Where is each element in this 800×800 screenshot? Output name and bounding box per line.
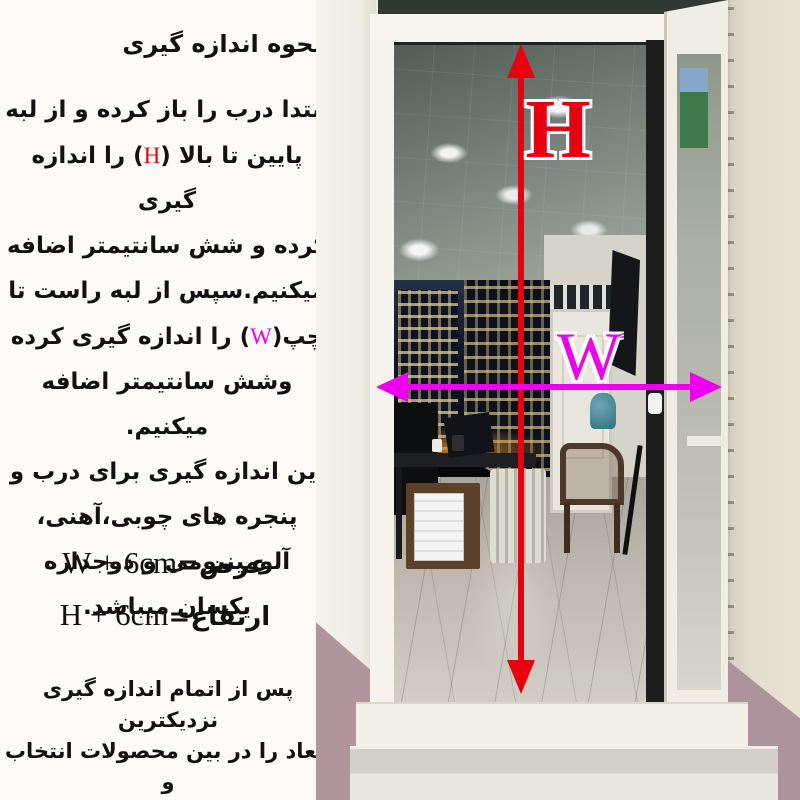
width-symbol-inline: W: [250, 324, 272, 349]
height-symbol-inline: H: [144, 143, 161, 168]
instruction-line: چپ(W) را اندازه گیری کرده: [0, 314, 334, 360]
reflected-picture: [680, 68, 708, 148]
water-cooler-jug: [590, 393, 616, 429]
footer-line: پس از اتمام اندازه گیری نزدیکترین: [0, 674, 336, 736]
measurement-guide-page: نحوه اندازه گیری ابتدا درب را باز کرده و…: [0, 0, 800, 800]
height-formula-label: ارتفاع: [190, 602, 270, 632]
instruction-line: پایین تا بالا (H) را اندازه گیری: [0, 133, 334, 224]
width-arrow-right-head: [690, 372, 722, 402]
instruction-line: پنجره های چوبی،آهنی،: [0, 495, 334, 540]
door-handle: [648, 393, 662, 414]
width-formula-label: عرض: [199, 550, 268, 580]
width-arrow-left-head: [376, 372, 408, 402]
instruction-line: کرده و شش سانتیمتر اضافه: [0, 224, 334, 269]
instruction-line: این اندازه گیری برای درب و: [0, 450, 334, 495]
footer-note: پس از اتمام اندازه گیری نزدیکترین ابعاد …: [0, 674, 336, 800]
height-formula-expression: H + 6cm: [60, 597, 169, 632]
wooden-chair-legs: [564, 503, 620, 553]
height-arrow-down-head: [507, 660, 535, 694]
door-frame-right-seal: [646, 40, 664, 742]
desk-leg: [396, 467, 402, 559]
door-frame-bottom: [356, 702, 748, 752]
instruction-line: وشش سانتیمتر اضافه میکنیم.: [0, 360, 334, 450]
wooden-chair: [560, 443, 624, 505]
instruction-line: ابتدا درب را باز کرده و از لبه: [0, 88, 334, 133]
mug: [452, 435, 464, 451]
height-marker-label: H: [520, 88, 596, 172]
footer-line: ابعاد را در بین محصولات انتخاب و: [0, 736, 336, 798]
door-photo: H W: [316, 0, 800, 800]
desk-monitor: [443, 412, 494, 458]
wall-corner-edge: [728, 0, 734, 660]
door-mullion: [687, 436, 731, 446]
equals-sign: =: [177, 550, 199, 580]
open-door-panel: [664, 0, 728, 742]
interior-door-transom: [550, 285, 612, 309]
width-arrow-line: [404, 384, 694, 390]
height-formula: ارتفاع=H + 6cm: [0, 597, 330, 633]
instruction-line: میکنیم.سپس از لبه راست تا: [0, 269, 334, 314]
wall-calendar: [414, 493, 464, 561]
height-arrow-up-head: [507, 44, 535, 78]
width-marker-label: W: [550, 322, 628, 390]
page-title: نحوه اندازه گیری: [110, 30, 335, 58]
width-formula: عرض=W + 6cm: [0, 545, 330, 581]
mug: [432, 439, 442, 452]
marble-step: [350, 746, 778, 800]
equals-sign: =: [169, 602, 191, 632]
width-formula-expression: W + 6cm: [62, 545, 177, 580]
